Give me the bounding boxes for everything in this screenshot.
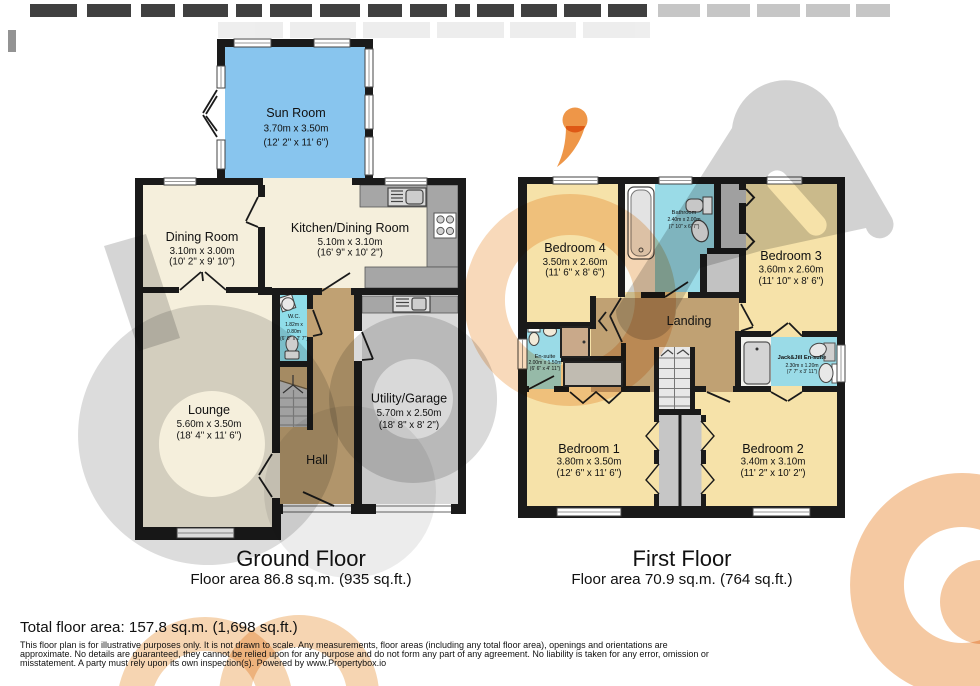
svg-text:Kitchen/Dining Room: Kitchen/Dining Room [291, 221, 409, 235]
svg-text:5.10m x 3.10m: 5.10m x 3.10m [318, 237, 383, 248]
svg-text:(11' 2" x 10' 2"): (11' 2" x 10' 2") [741, 468, 806, 479]
svg-text:Sun Room: Sun Room [266, 106, 326, 120]
svg-text:(7' 10" x 6' 7"): (7' 10" x 6' 7") [669, 224, 700, 230]
svg-text:Bedroom 2: Bedroom 2 [742, 442, 804, 456]
svg-text:3.70m x 3.50m: 3.70m x 3.50m [264, 124, 329, 135]
svg-text:(12' 2" x 11' 6"): (12' 2" x 11' 6") [264, 138, 329, 149]
svg-text:3.40m x 3.10m: 3.40m x 3.10m [741, 457, 806, 468]
svg-text:Dining Room: Dining Room [166, 230, 239, 244]
svg-text:Floor area 86.8 sq.m. (935 sq.: Floor area 86.8 sq.m. (935 sq.ft.) [190, 571, 411, 588]
svg-text:(18' 8" x 8' 2"): (18' 8" x 8' 2") [379, 420, 439, 431]
svg-text:(7' 7" x 3' 11"): (7' 7" x 3' 11") [787, 369, 818, 375]
svg-text:Hall: Hall [306, 453, 328, 467]
svg-text:1.82m x: 1.82m x [285, 322, 303, 328]
svg-text:Ground Floor: Ground Floor [236, 546, 366, 571]
svg-text:(12' 6" x 11' 6"): (12' 6" x 11' 6") [557, 468, 622, 479]
svg-text:Bathroom: Bathroom [672, 210, 697, 216]
svg-text:(10' 2" x 9' 10"): (10' 2" x 9' 10") [169, 257, 235, 268]
svg-text:Bedroom 1: Bedroom 1 [558, 442, 620, 456]
svg-text:Bedroom 4: Bedroom 4 [544, 241, 606, 255]
svg-text:W.C.: W.C. [288, 314, 301, 320]
svg-text:Landing: Landing [667, 314, 712, 328]
svg-text:(16' 9" x 10' 2"): (16' 9" x 10' 2") [317, 248, 383, 259]
svg-text:Total floor area: 157.8 sq.m.: Total floor area: 157.8 sq.m. (1,698 sq.… [20, 619, 298, 636]
svg-text:Floor area 70.9 sq.m. (764 sq.: Floor area 70.9 sq.m. (764 sq.ft.) [571, 571, 792, 588]
svg-text:(18' 4" x 11' 6"): (18' 4" x 11' 6") [177, 431, 242, 442]
svg-text:3.50m x 2.60m: 3.50m x 2.60m [543, 257, 608, 268]
svg-text:First Floor: First Floor [633, 546, 732, 571]
svg-text:misstatement. A party must rel: misstatement. A party must rely upon its… [20, 658, 386, 668]
svg-text:Lounge: Lounge [188, 403, 230, 417]
svg-text:(11' 10" x 8' 6"): (11' 10" x 8' 6") [759, 276, 824, 287]
svg-text:Utility/Garage: Utility/Garage [371, 392, 447, 406]
svg-text:(6' 6" x 4' 11"): (6' 6" x 4' 11") [530, 366, 561, 372]
svg-text:3.10m x 3.00m: 3.10m x 3.00m [170, 246, 235, 257]
svg-text:Jack&Jill En-suite: Jack&Jill En-suite [778, 355, 827, 361]
svg-text:2.40m x 2.00m: 2.40m x 2.00m [667, 217, 700, 223]
svg-text:3.80m x 3.50m: 3.80m x 3.50m [557, 457, 622, 468]
svg-text:5.60m x 3.50m: 5.60m x 3.50m [177, 419, 242, 430]
svg-text:(6' 0" x 2' 7"): (6' 0" x 2' 7") [280, 336, 308, 342]
svg-text:5.70m x 2.50m: 5.70m x 2.50m [377, 408, 442, 419]
svg-text:Bedroom 3: Bedroom 3 [760, 249, 822, 263]
svg-text:3.60m x 2.60m: 3.60m x 2.60m [759, 265, 824, 276]
svg-text:0.80m: 0.80m [287, 329, 301, 335]
svg-text:(11' 6" x 8' 6"): (11' 6" x 8' 6") [545, 268, 605, 279]
